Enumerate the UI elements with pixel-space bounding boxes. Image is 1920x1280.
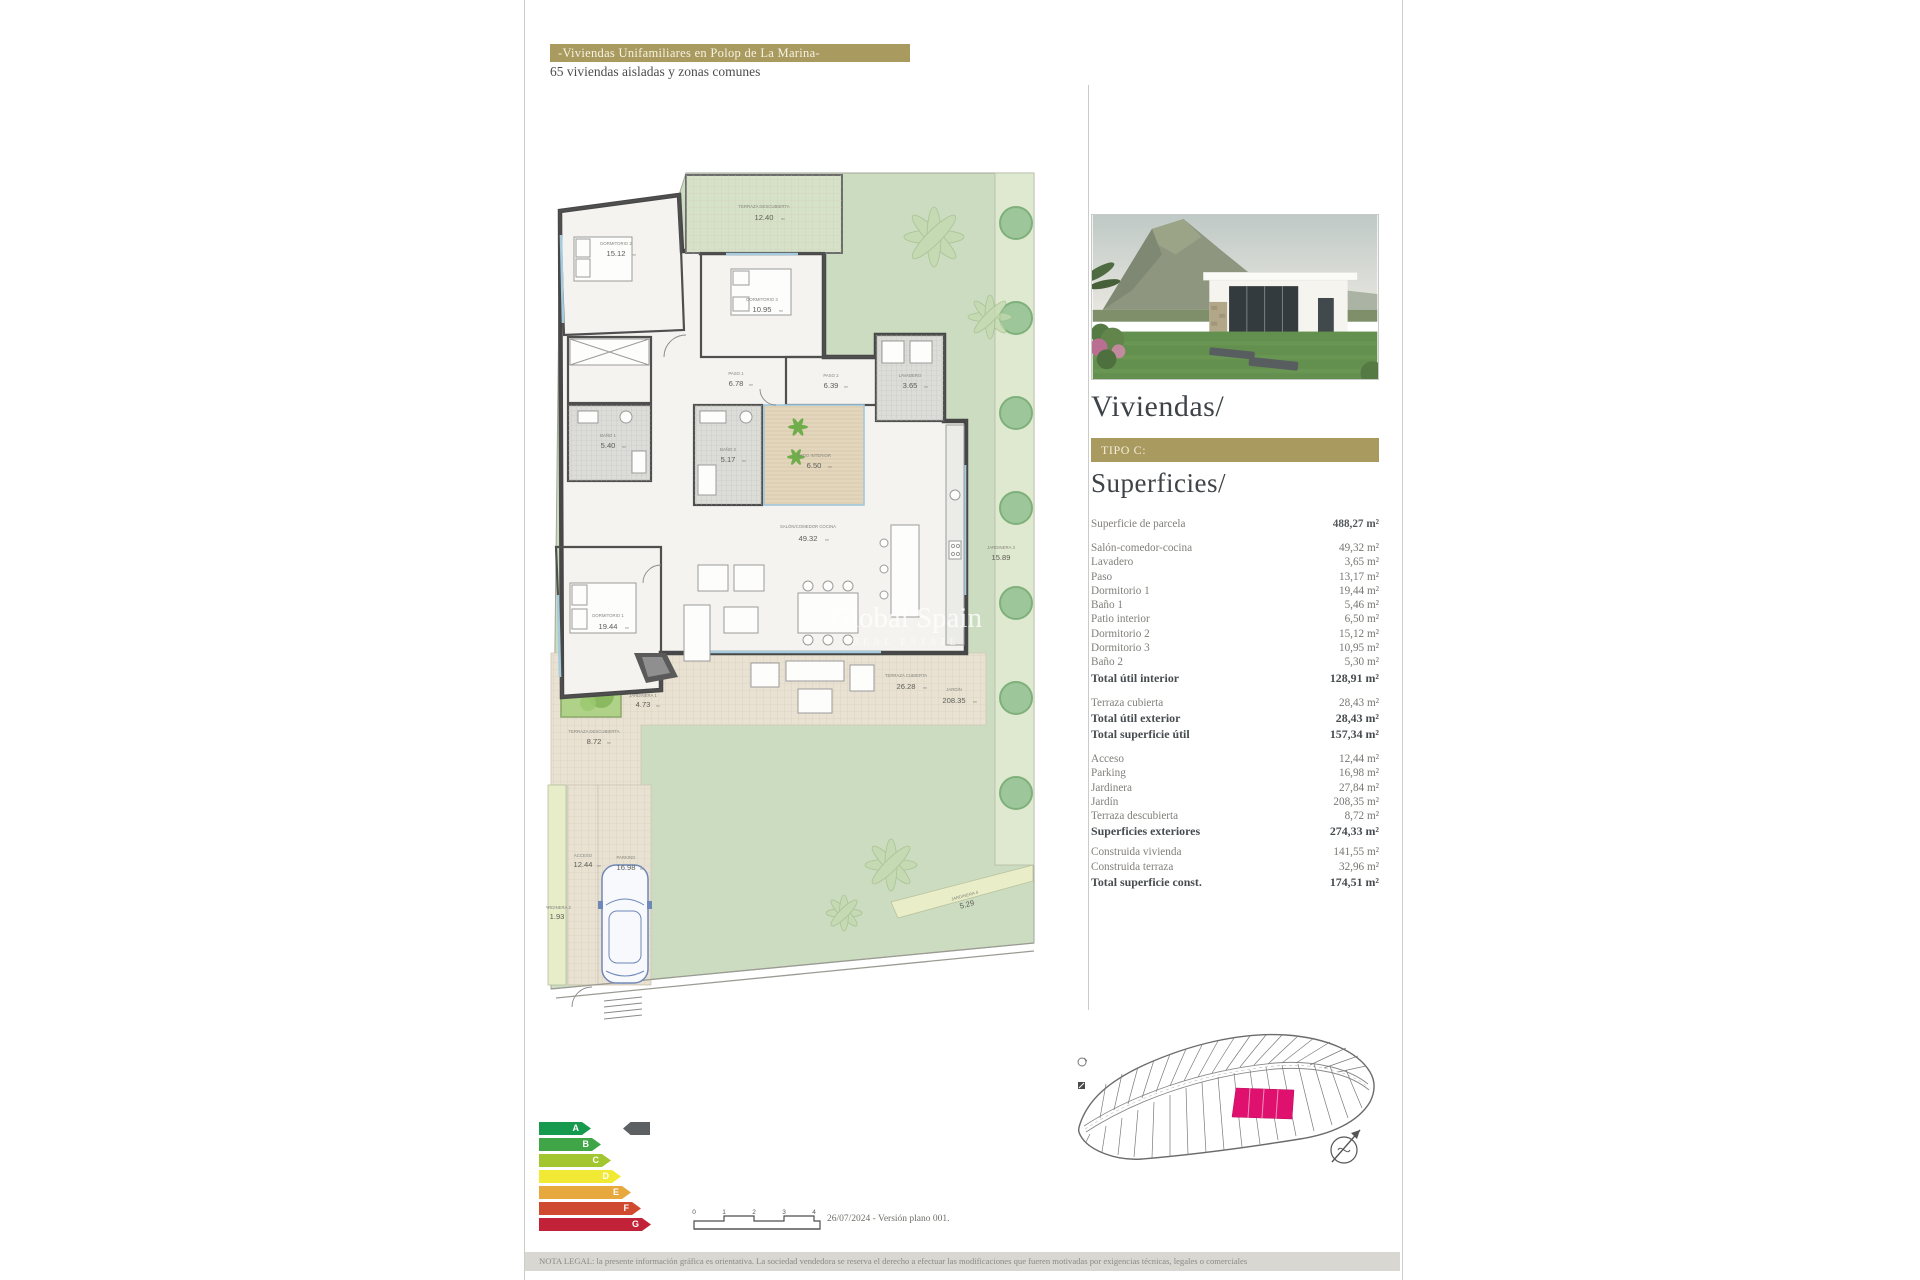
room-label: DORMITORIO 3 [746, 297, 778, 302]
table-row-total: Total superficie útil157,34 m² [1091, 727, 1379, 743]
room-area: 10.95 [752, 305, 771, 314]
room-label: SALÓN/COMEDOR COCINA [780, 524, 836, 529]
legend-icons [1078, 1058, 1087, 1089]
plan-sheet-page: -Viviendas Unifamiliares en Polop de La … [0, 0, 1920, 1280]
watermark-line1: Global Spain [830, 602, 983, 634]
energy-bar-g: G [539, 1218, 651, 1231]
room-label: TERRAZA DESCUBIERTA [738, 204, 789, 209]
table-row-total: Total útil interior128,91 m² [1091, 671, 1379, 687]
energy-bar-f: F [539, 1202, 641, 1215]
energy-letter: F [624, 1202, 630, 1215]
room-label: TERRAZA DESCUBIERTA [568, 729, 619, 734]
table-row: Acceso12,44 m² [1091, 753, 1379, 767]
room-area: 19.44 [598, 622, 617, 631]
scale-tick: 2 [752, 1209, 756, 1216]
room-label: PASO 2 [823, 373, 839, 378]
energy-letter: G [632, 1218, 639, 1231]
sofa [684, 605, 710, 661]
legal-note: NOTA LEGAL: la presente información gráf… [525, 1252, 1400, 1271]
room-area: 26.28 [896, 682, 915, 691]
room-area: 3.65 [903, 381, 918, 390]
room-label: JARDINERA 2 [546, 905, 571, 910]
energy-letter: E [613, 1186, 619, 1199]
room-label: PASO 1 [728, 371, 744, 376]
table-row: Salón-comedor-cocina49,32 m² [1091, 542, 1379, 556]
table-row: Dormitorio 215,12 m² [1091, 628, 1379, 642]
scale-tick: 4 [812, 1209, 816, 1216]
room-area: 4.73 [636, 700, 651, 709]
energy-bar-d: D [539, 1170, 621, 1183]
room-label: BAÑO 2 [720, 447, 736, 452]
subsection-title: Superficies/ [1091, 468, 1226, 499]
site-plan [1070, 1022, 1400, 1180]
sheet-subtitle: 65 viviendas aisladas y zonas comunes [550, 64, 760, 80]
room-label: DORMITORIO 1 [592, 613, 624, 618]
room-area: 16.98 [616, 863, 635, 872]
energy-rating-chart: A B C D E F G [539, 1122, 689, 1234]
table-row: Terraza descubierta8,72 m² [1091, 810, 1379, 824]
sheet-content: -Viviendas Unifamiliares en Polop de La … [524, 0, 1403, 1280]
table-row: Construida terraza32,96 m² [1091, 861, 1379, 875]
vertical-divider [1088, 85, 1089, 1010]
room-area: 1.93 [550, 912, 565, 921]
sheet-title-bar: -Viviendas Unifamiliares en Polop de La … [550, 44, 910, 62]
watermark-line2: REAL ESTATE [852, 637, 960, 648]
room-label: LAVADERO [899, 373, 922, 378]
table-row: Baño 25,30 m² [1091, 656, 1379, 670]
energy-letter: C [593, 1154, 600, 1167]
room-area: 12.44 [573, 860, 592, 869]
room-area: 6.50 [807, 461, 822, 470]
room-area: 208.35 [942, 696, 965, 705]
room-label: JARDÍN [946, 687, 962, 692]
table-row: Dormitorio 119,44 m² [1091, 585, 1379, 599]
room-area: 5.17 [721, 455, 736, 464]
floor-plan: Global Spain REAL ESTATE DORMITORIO 2 15… [546, 165, 1038, 1035]
room-label: JARDINERA 1 [629, 693, 657, 698]
watermark: Global Spain REAL ESTATE [830, 602, 983, 648]
table-row: Dormitorio 310,95 m² [1091, 642, 1379, 656]
scale-tick: 3 [782, 1209, 786, 1216]
table-row-total: Total superficie const.174,51 m² [1091, 875, 1379, 891]
table-row: Jardinera27,84 m² [1091, 782, 1379, 796]
room-area: 6.39 [824, 381, 839, 390]
scale-tick: 0 [692, 1209, 696, 1216]
energy-bar-b: B [539, 1138, 601, 1151]
table-row: Patio interior6,50 m² [1091, 613, 1379, 627]
version-note: 26/07/2024 - Versión plano 001. [827, 1214, 950, 1224]
room-area: 12.40 [754, 213, 773, 222]
energy-bar-c: C [539, 1154, 611, 1167]
energy-bar-e: E [539, 1186, 631, 1199]
room-label: ACCESO [574, 853, 593, 858]
section-title: Viviendas/ [1091, 390, 1224, 424]
room-label: PATIO INTERIOR [797, 453, 831, 458]
table-row-total: Total útil exterior28,43 m² [1091, 711, 1379, 727]
room-area: 8.72 [587, 737, 602, 746]
table-row: Jardín208,35 m² [1091, 796, 1379, 810]
table-row: Terraza cubierta28,43 m² [1091, 697, 1379, 711]
table-row: Paso13,17 m² [1091, 571, 1379, 585]
room-area: 15.89 [991, 553, 1010, 562]
scale-tick: 1 [722, 1209, 726, 1216]
room-label: BAÑO 1 [600, 433, 616, 438]
room-area: 49.32 [798, 534, 817, 543]
table-row: Parking16,98 m² [1091, 767, 1379, 781]
energy-letter: D [603, 1170, 610, 1183]
energy-bar-a: A [539, 1122, 591, 1135]
room-label: JARDINERA 3 [987, 545, 1015, 550]
room-label: TERRAZA CUBIERTA [885, 673, 927, 678]
table-row: Baño 15,46 m² [1091, 599, 1379, 613]
scale-bar: 0 1 2 3 4 [691, 1206, 825, 1236]
energy-letter: B [583, 1138, 590, 1151]
energy-letter: A [573, 1122, 580, 1135]
entrance-steps [572, 987, 642, 1019]
table-row: Lavadero3,65 m² [1091, 556, 1379, 570]
compass-icon [1331, 1130, 1360, 1163]
type-label-bar: TIPO C: [1091, 438, 1379, 462]
surfaces-table: Superficie de parcela488,27 m² Salón-com… [1091, 518, 1379, 891]
villa-photo [1091, 214, 1379, 380]
room-label: DORMITORIO 2 [600, 241, 632, 246]
room-area: 15.12 [606, 249, 625, 258]
room-label: PARKING [616, 855, 636, 860]
room-area: 5.40 [601, 441, 616, 450]
table-row: Superficie de parcela488,27 m² [1091, 518, 1379, 534]
table-row-total: Superficies exteriores274,33 m² [1091, 824, 1379, 840]
room-area: 6.78 [729, 379, 744, 388]
table-row: Construida vivienda141,55 m² [1091, 846, 1379, 860]
